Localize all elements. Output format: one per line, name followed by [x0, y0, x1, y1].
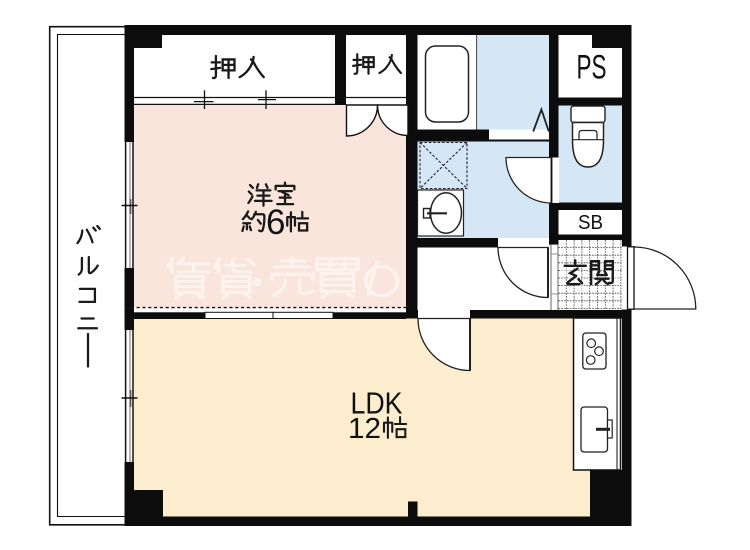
svg-text:6: 6	[266, 203, 285, 242]
svg-text:PS: PS	[577, 49, 607, 87]
svg-text:SB: SB	[578, 212, 603, 234]
svg-text:12: 12	[348, 413, 381, 445]
